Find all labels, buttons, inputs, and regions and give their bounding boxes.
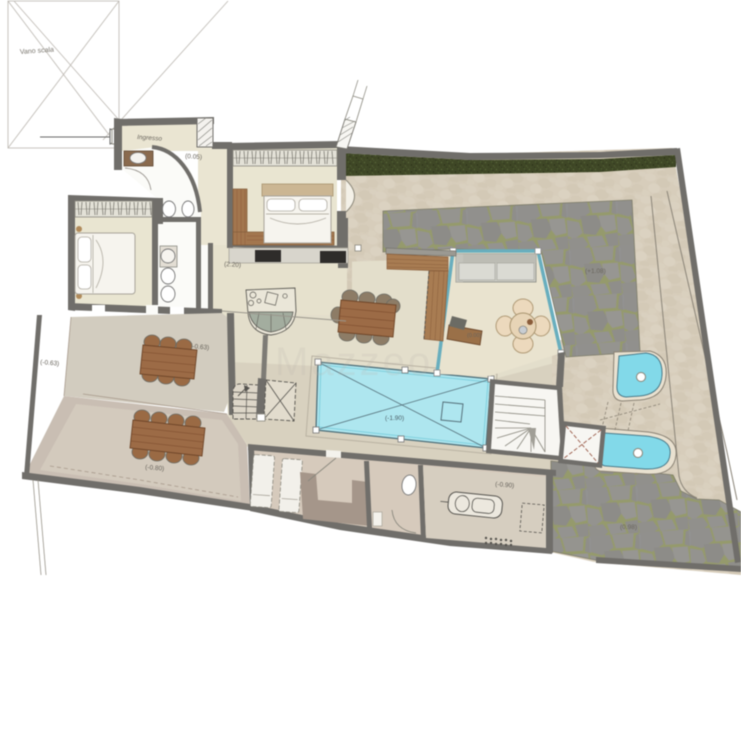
svg-text:(-1.90): (-1.90) [385, 415, 404, 422]
svg-text:Mazzeo: Mazzeo [275, 340, 433, 384]
svg-text:(0.00): (0.00) [467, 333, 482, 339]
svg-text:(0.98): (0.98) [620, 524, 637, 531]
svg-text:(0.05): (0.05) [185, 153, 202, 161]
svg-text:(2.20): (2.20) [224, 261, 241, 269]
svg-text:(+1.08): (+1.08) [585, 268, 606, 275]
